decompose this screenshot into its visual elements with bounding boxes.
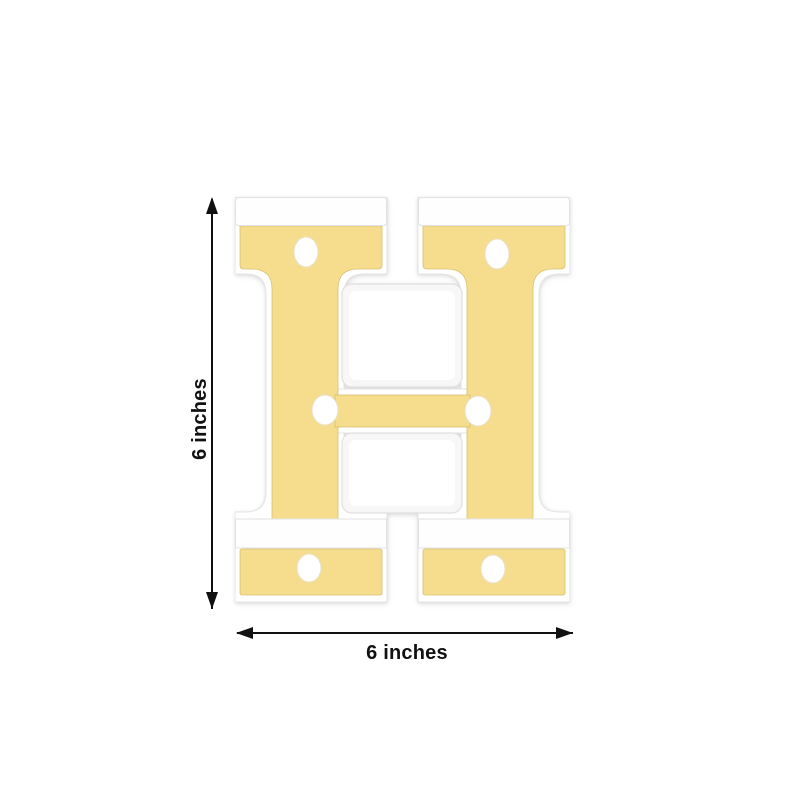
counter-face: [349, 291, 455, 380]
letter-counter-upper: [342, 284, 462, 387]
led-bulb-middle-left: [312, 395, 338, 425]
height-dimension-label: 6 inches: [187, 359, 213, 479]
letter-cap-bottom-left: [236, 519, 387, 548]
letter-cap-top-left: [236, 198, 387, 226]
led-bulb-top-left: [294, 237, 318, 267]
dimension-arrow-right-icon: [556, 627, 573, 639]
led-bulb-bottom-right: [481, 555, 505, 583]
letter-counter-lower: [342, 433, 462, 513]
letter-face-crossbar: [335, 395, 470, 427]
led-bulb-middle-right: [465, 396, 491, 426]
led-bulb-bottom-left: [297, 554, 321, 582]
counter-face: [349, 440, 455, 506]
letter-cap-top-right: [419, 198, 570, 226]
letter-cap-bottom-right: [419, 519, 570, 548]
width-dimension-line: [237, 632, 573, 634]
width-dimension-label: 6 inches: [347, 641, 467, 665]
led-bulb-top-right: [485, 239, 509, 269]
marquee-letter-light: [235, 197, 570, 612]
dimension-arrow-down-icon: [206, 592, 218, 609]
product-dimension-image: 6 inches 6 inches: [0, 0, 800, 800]
